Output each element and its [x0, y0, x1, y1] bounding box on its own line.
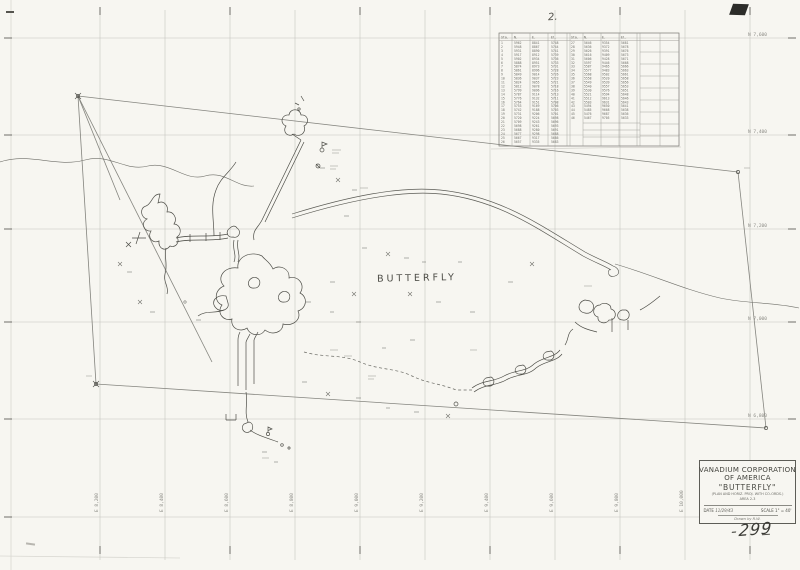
northing-grid-labels: N 7,600N 7,400N 7,200N 7,000N 6,800N 6,6…: [748, 32, 767, 517]
map-sheet: E 8,200E 8,400E 8,600E 8,800E 9,000E 9,2…: [0, 0, 800, 570]
svg-text:Sta.: Sta.: [501, 36, 509, 40]
boundary-corner-monuments: [75, 93, 768, 430]
svg-text:E.: E.: [532, 36, 536, 40]
svg-text:9335: 9335: [532, 140, 540, 144]
svg-text:N.: N.: [584, 36, 588, 40]
svg-text:N 7,400: N 7,400: [748, 129, 767, 135]
svg-text:26: 26: [501, 140, 505, 144]
map-area-label: BUTTERFLY: [377, 272, 457, 285]
map-drawing: E 8,200E 8,400E 8,600E 8,800E 9,000E 9,2…: [0, 0, 800, 570]
svg-text:N 7,000: N 7,000: [748, 316, 767, 322]
svg-text:N 7,200: N 7,200: [748, 223, 767, 229]
svg-text:El.: El.: [551, 36, 557, 40]
svg-text:46: 46: [571, 116, 575, 120]
title-block: VANADIUM CORPORATION OF AMERICA "BUTTERF…: [699, 460, 796, 524]
station-coordinate-table: Sta.N.E.El.Sta.N.E.El. 15962884157482594…: [491, 33, 681, 149]
svg-text:5467: 5467: [584, 116, 592, 120]
svg-text:N 7,600: N 7,600: [748, 32, 767, 38]
easting-grid-labels: E 8,200E 8,400E 8,600E 8,800E 9,000E 9,2…: [94, 490, 750, 512]
svg-text:N.: N.: [514, 36, 518, 40]
table-headers: Sta.N.E.El.Sta.N.E.El.: [501, 36, 627, 40]
handwritten-sheet-note: 2.: [548, 12, 558, 23]
scale-value: 1" = 40': [775, 508, 791, 513]
company-name-line2: OF AMERICA: [724, 474, 771, 482]
svg-text:5657: 5657: [514, 140, 522, 144]
svg-text:5683: 5683: [551, 140, 559, 144]
svg-text:E 8,400: E 8,400: [159, 493, 165, 512]
survey-grid: [6, 10, 794, 560]
svg-text:E 10,000: E 10,000: [679, 490, 685, 512]
svg-text:Sta.: Sta.: [571, 36, 579, 40]
contour-lines: [0, 158, 799, 308]
date-scale-row: DATE 11/29/43 SCALE 1" = 40': [704, 505, 792, 513]
page-number-dash-mark: [762, 534, 770, 538]
map-name: "BUTTERFLY": [719, 483, 776, 492]
svg-text:E 9,200: E 9,200: [419, 493, 425, 512]
svg-text:E 8,800: E 8,800: [289, 493, 295, 512]
trail-dashed: [304, 352, 472, 390]
company-name-line1: VANADIUM CORPORATION: [699, 466, 796, 474]
area-line: AREA 2-3: [740, 497, 756, 502]
scale-label: SCALE: [761, 508, 774, 513]
svg-text:E 9,400: E 9,400: [484, 493, 490, 512]
date-label: DATE: [704, 508, 714, 513]
svg-text:E.: E.: [602, 36, 606, 40]
scattered-survey-marks: [118, 168, 534, 462]
date-value: 11/29/43: [715, 508, 733, 513]
svg-text:E 8,200: E 8,200: [94, 493, 100, 512]
svg-text:5633: 5633: [621, 116, 629, 120]
svg-text:9705: 9705: [602, 116, 610, 120]
svg-text:E 9,600: E 9,600: [549, 493, 555, 512]
tram-road: [292, 189, 619, 276]
svg-text:E 8,600: E 8,600: [224, 493, 230, 512]
svg-text:E 9,000: E 9,000: [354, 493, 360, 512]
svg-text:E 9,800: E 9,800: [614, 493, 620, 512]
svg-text:El.: El.: [621, 36, 627, 40]
table-rows: 1596288415748259488867574435931889057414…: [501, 41, 629, 144]
top-left-edge-mark: [6, 11, 14, 13]
